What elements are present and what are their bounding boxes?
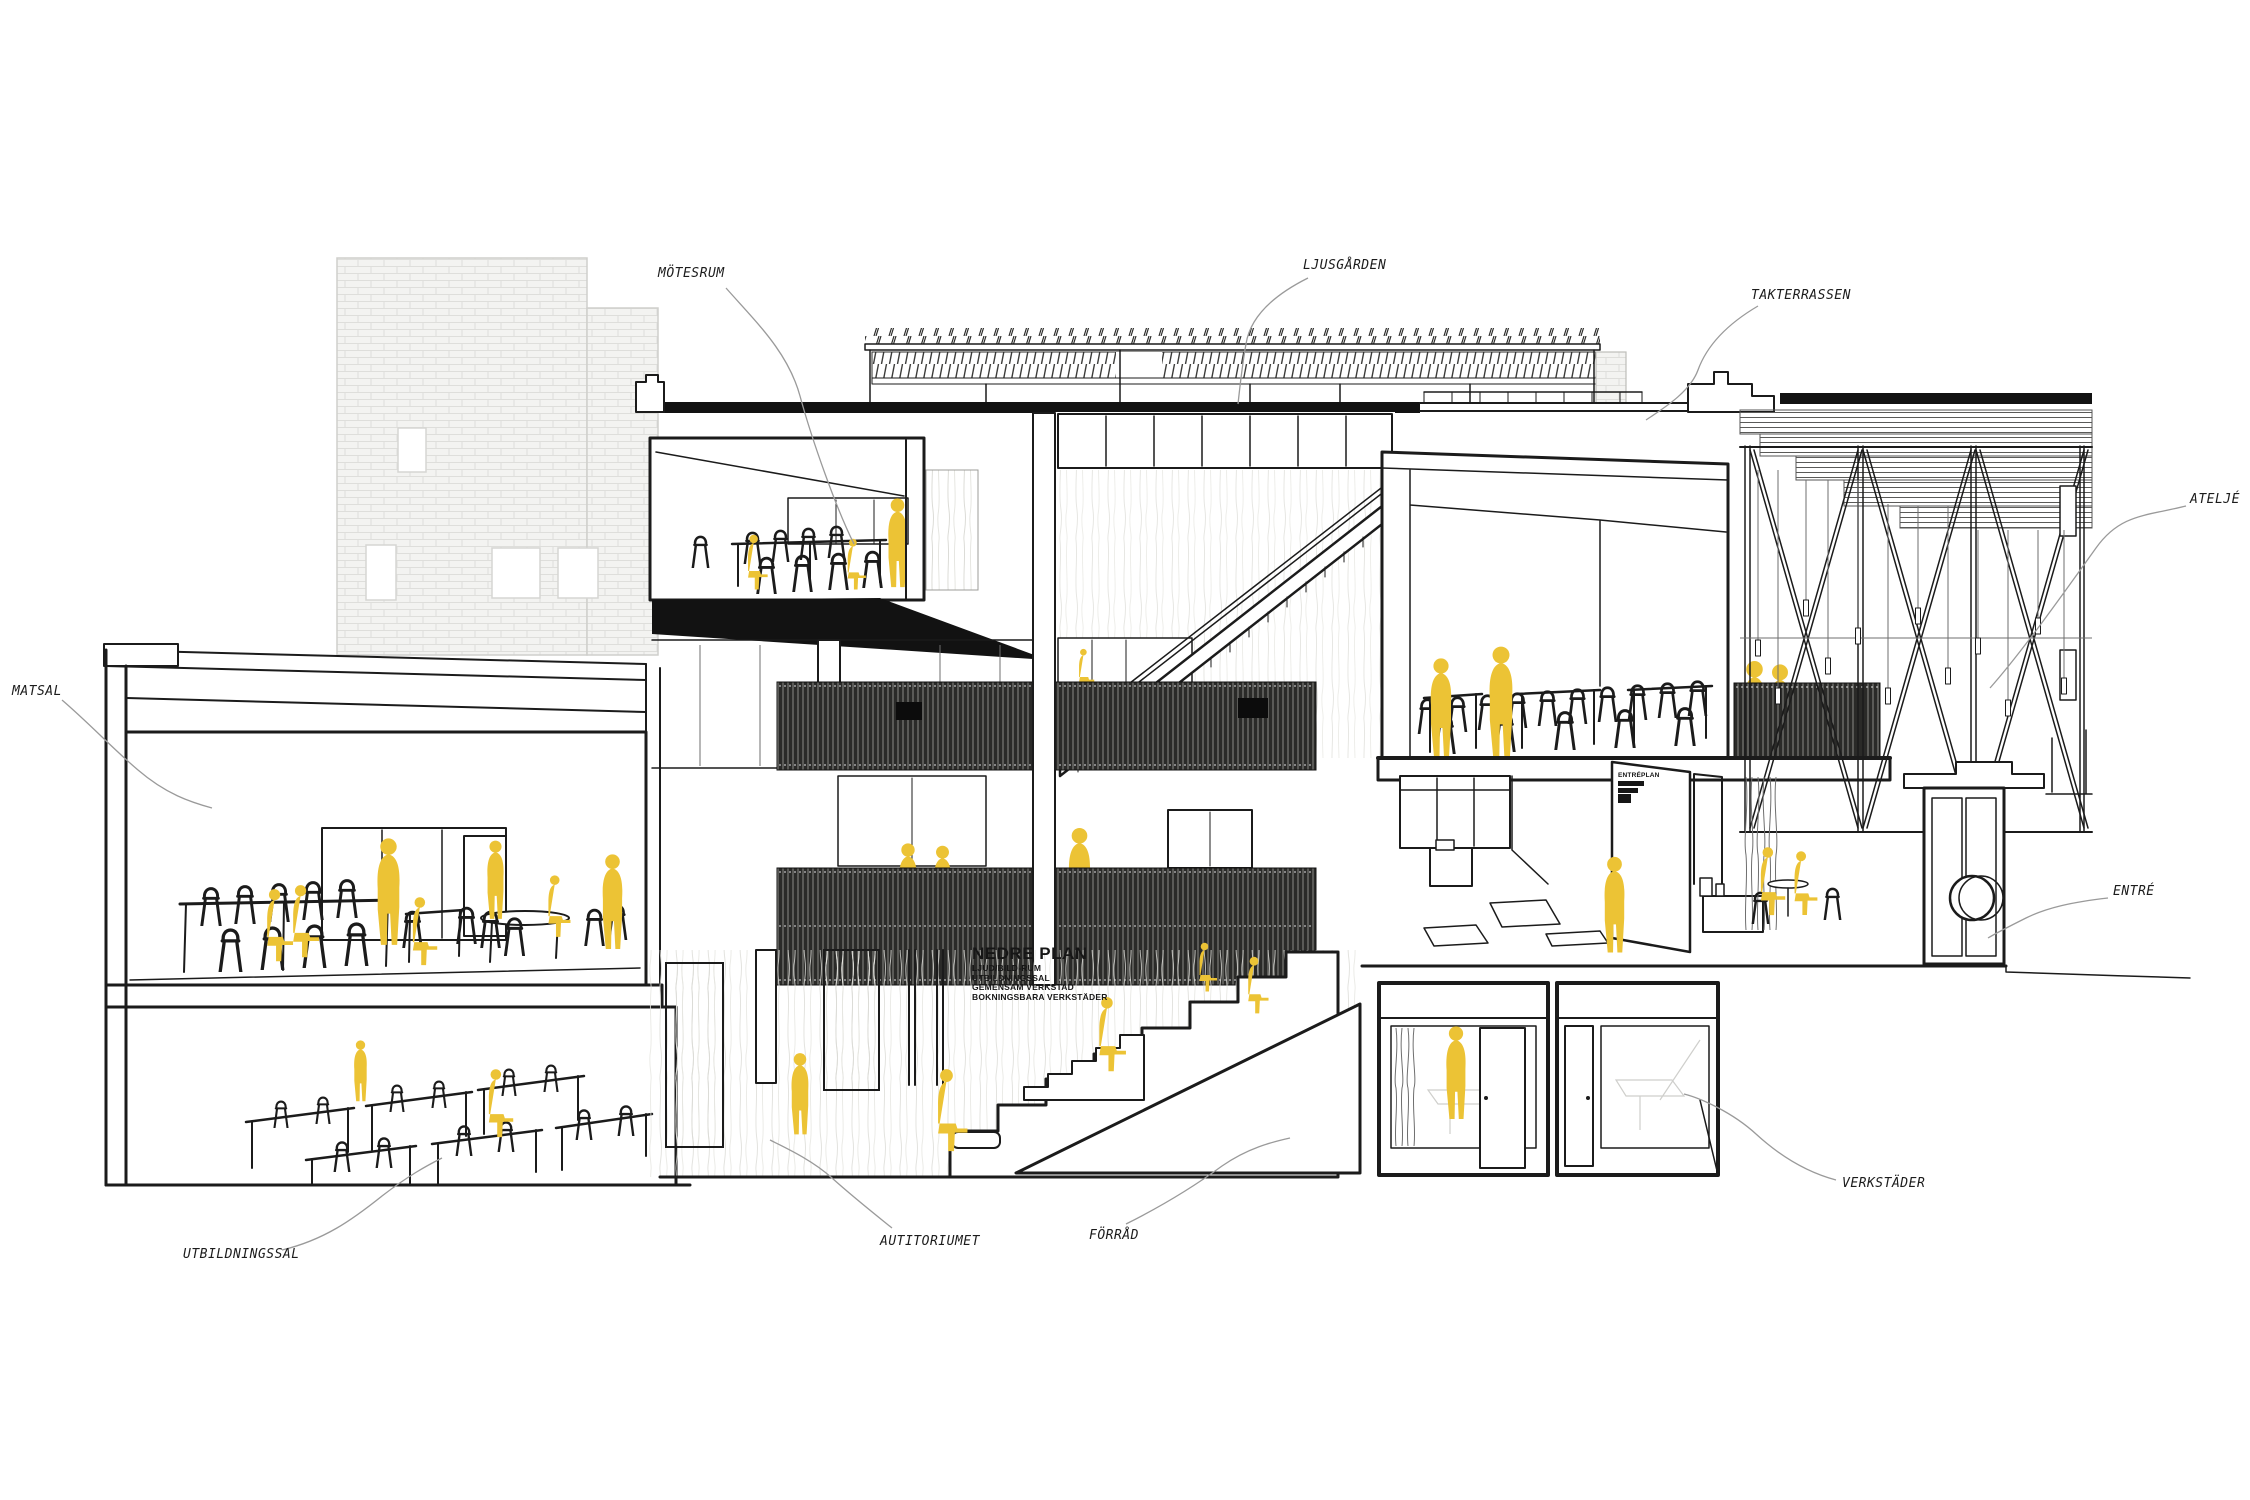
label-atelje: ATELJÉ: [2190, 492, 2240, 507]
section-drawing-canvas: [0, 0, 2250, 1500]
nedre-plan-item: BOKNINGSBARA VERKSTÄDER: [972, 993, 1108, 1003]
label-verkstader: VERKSTÄDER: [1842, 1176, 1925, 1191]
bg-window: [366, 545, 396, 600]
label-motesrum: MÖTESRUM: [658, 266, 725, 281]
motesrum-room: [650, 438, 1048, 660]
entreplan-illegible-lines: [1618, 781, 1660, 803]
label-ljusgarden: LJUSGÅRDEN: [1303, 258, 1386, 273]
label-takterrassen: TAKTERRASSEN: [1751, 288, 1851, 303]
entreplan-title: ENTRÉPLAN: [1618, 772, 1660, 779]
right-section: [1362, 410, 2190, 1175]
background-building: [337, 258, 658, 655]
label-utbildningssal: UTBILDNINGSSAL: [183, 1247, 300, 1262]
bg-window: [398, 428, 426, 472]
label-matsal: MATSAL: [12, 684, 62, 699]
entreplan-block: ENTRÉPLAN: [1618, 772, 1660, 805]
nedre-plan-block: NEDRE PLAN LJUD/BILD-RUM UTBILDNINGSSAL …: [972, 944, 1108, 1002]
nedre-plan-title: NEDRE PLAN: [972, 944, 1108, 964]
label-autitoriumet: AUTITORIUMET: [880, 1234, 980, 1249]
label-forrad: FÖRRÅD: [1089, 1228, 1139, 1243]
bg-window: [558, 548, 598, 598]
left-wing: [104, 644, 690, 1185]
bg-window: [492, 548, 540, 598]
label-entre: ENTRÉ: [2113, 884, 2155, 899]
architectural-section-drawing: MATSAL MÖTESRUM LJUSGÅRDEN TAKTERRASSEN …: [0, 0, 2250, 1500]
